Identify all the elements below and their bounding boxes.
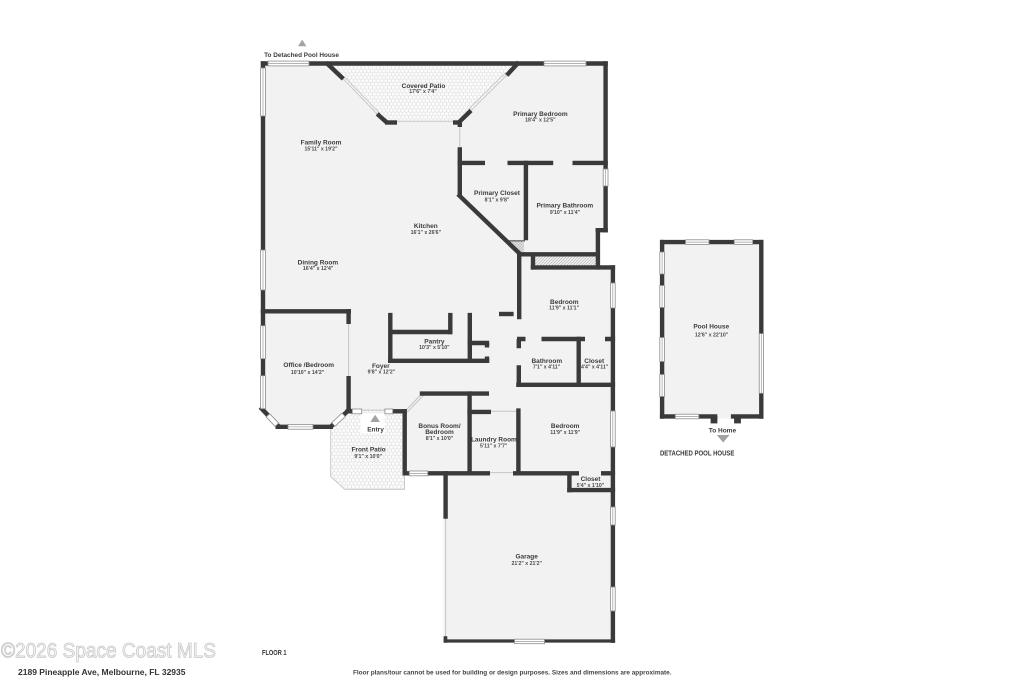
svg-text:DETACHED POOL HOUSE: DETACHED POOL HOUSE xyxy=(660,449,735,458)
svg-text:16'4" x 12'4": 16'4" x 12'4" xyxy=(303,266,334,272)
svg-text:Entry: Entry xyxy=(367,426,384,433)
svg-text:21'2" x 21'2": 21'2" x 21'2" xyxy=(511,561,542,567)
svg-text:2189 Pineapple Ave, Melbourne,: 2189 Pineapple Ave, Melbourne, FL 32935 xyxy=(18,667,186,677)
svg-text:Primary Closet: Primary Closet xyxy=(474,190,521,197)
svg-text:11'9" x 11'9": 11'9" x 11'9" xyxy=(550,430,580,436)
svg-text:9'1" x 10'0": 9'1" x 10'0" xyxy=(354,454,382,460)
svg-text:10'3" x 5'10": 10'3" x 5'10" xyxy=(419,345,450,351)
svg-text:10'10" x 14'2": 10'10" x 14'2" xyxy=(291,370,325,376)
svg-text:Front Patio: Front Patio xyxy=(351,446,385,453)
svg-text:8'1" x 9'8": 8'1" x 9'8" xyxy=(485,198,510,204)
svg-text:To Detached Pool House: To Detached Pool House xyxy=(264,52,339,59)
svg-text:11'9" x 11'1": 11'9" x 11'1" xyxy=(549,305,579,311)
svg-text:Office /Bedroom: Office /Bedroom xyxy=(283,362,334,369)
svg-text:5'11" x 7'7": 5'11" x 7'7" xyxy=(480,443,508,449)
svg-text:Pool House: Pool House xyxy=(693,324,729,331)
svg-text:Floor plans/tour cannot be use: Floor plans/tour cannot be used for buil… xyxy=(353,669,672,676)
svg-text:18'4" x 12'5": 18'4" x 12'5" xyxy=(525,118,556,124)
svg-text:12'6" x 22'10": 12'6" x 22'10" xyxy=(695,332,729,338)
svg-text:8'1" x 10'0": 8'1" x 10'0" xyxy=(426,436,454,442)
svg-text:4'4" x 4'11": 4'4" x 4'11" xyxy=(581,365,609,371)
svg-text:16'1" x 26'6": 16'1" x 26'6" xyxy=(411,230,442,236)
svg-text:17'6" x 7'4": 17'6" x 7'4" xyxy=(409,89,437,95)
svg-text:Primary Bathroom: Primary Bathroom xyxy=(536,203,593,210)
svg-text:©2026 Space Coast MLS: ©2026 Space Coast MLS xyxy=(1,640,216,663)
svg-text:FLOOR 1: FLOOR 1 xyxy=(262,650,287,657)
svg-text:To Home: To Home xyxy=(709,428,737,435)
svg-text:15'11" x 19'2": 15'11" x 19'2" xyxy=(304,146,338,152)
svg-text:7'1" x 4'11": 7'1" x 4'11" xyxy=(533,365,561,371)
svg-text:9'8" x 12'2": 9'8" x 12'2" xyxy=(368,369,396,375)
svg-text:9'10" x 11'4": 9'10" x 11'4" xyxy=(550,210,581,216)
svg-text:Garage: Garage xyxy=(515,554,538,561)
svg-text:5'4" x 1'10": 5'4" x 1'10" xyxy=(577,483,605,489)
